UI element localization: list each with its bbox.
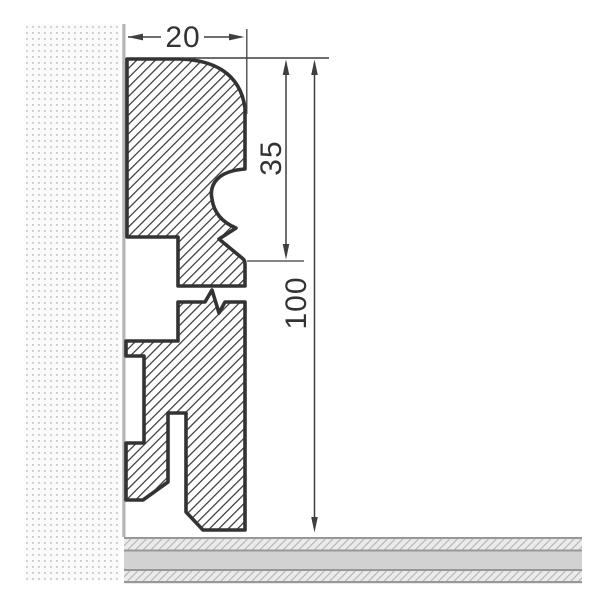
technical-drawing-canvas: 20 35 100	[0, 0, 604, 604]
arrow-up-35-icon	[283, 60, 290, 76]
arrow-right-icon	[229, 34, 245, 41]
floor-hatch-layer-upper	[124, 539, 582, 549]
arrow-down-100-icon	[311, 517, 318, 533]
floor-layers	[124, 537, 582, 583]
skirting-profile-section	[126, 59, 245, 530]
skirting-lower-profile	[126, 290, 245, 530]
wall-stipple-texture	[26, 24, 120, 581]
floor-solid-layer	[124, 552, 582, 569]
floor-bottom-line	[124, 581, 582, 583]
skirting-board-technical-drawing: 20 35 100	[0, 0, 604, 604]
floor-top-line	[124, 537, 582, 539]
total-height-dimension-label: 100	[280, 276, 313, 329]
arrow-down-35-icon	[283, 244, 290, 260]
floor-divider-line	[124, 550, 582, 552]
upper-height-dimension-label: 35	[255, 140, 288, 175]
floor-hatch-layer-lower	[124, 571, 582, 581]
floor-divider-line-2	[124, 569, 582, 571]
arrow-up-100-icon	[311, 60, 318, 76]
width-dimension-label: 20	[165, 21, 200, 54]
arrow-left-icon	[128, 34, 144, 41]
skirting-upper-profile	[127, 59, 245, 286]
